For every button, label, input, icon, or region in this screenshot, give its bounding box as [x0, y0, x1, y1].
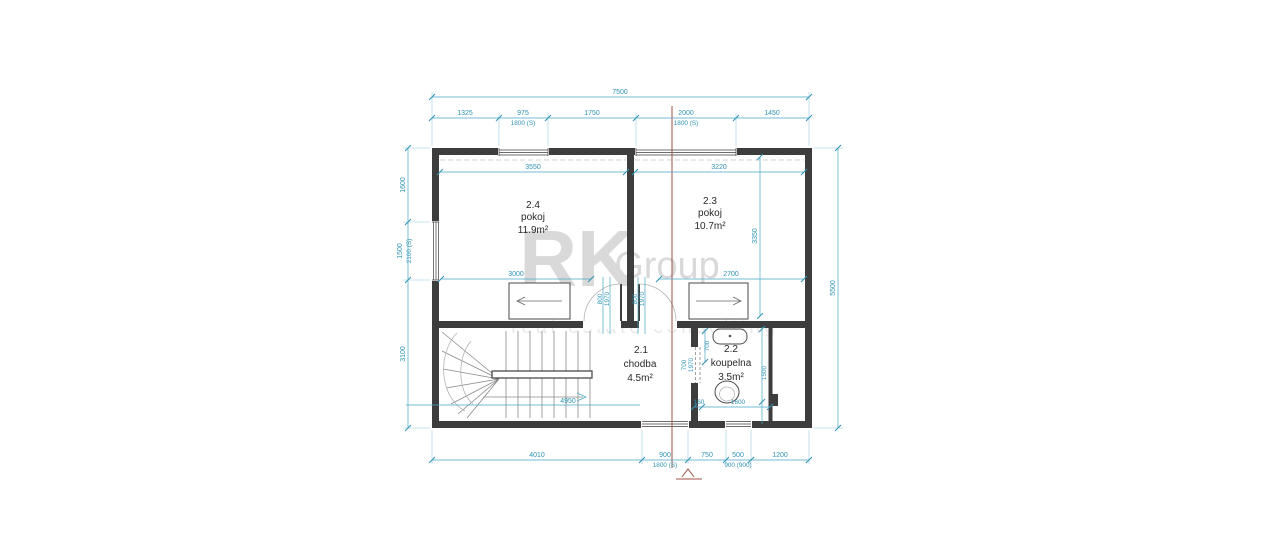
dim-room23-depth: 3350 [752, 228, 759, 244]
room23-name: pokoj [698, 208, 722, 219]
dim-bottom-window: 900 (900) [724, 462, 751, 469]
dim-top-window-2: 1800 (S) [674, 120, 699, 127]
dim-top-5: 1450 [764, 110, 780, 117]
room21-name: chodba [624, 359, 657, 370]
dim-top-3: 1750 [584, 110, 600, 117]
room24-name: pokoj [521, 212, 545, 223]
dim-bottom-5: 1200 [772, 452, 788, 459]
dim-top-4: 2000 [678, 110, 694, 117]
dim-left-window: 2100 (S) [406, 239, 413, 264]
room22-number: 2.2 [724, 344, 738, 355]
dim-top-window-1: 1800 (S) [511, 120, 536, 127]
dim-stair-walkline: 4950 [560, 398, 576, 405]
floor-plan-canvas: RK Group real estate consulting [0, 0, 1280, 551]
dim-left-1: 1600 [400, 177, 407, 193]
column [770, 394, 778, 406]
dim-right-overall: 5500 [830, 280, 837, 296]
dim-room23-bed: 2700 [723, 271, 739, 278]
section-marker-triangle [682, 469, 694, 477]
washbasin-tap [729, 335, 732, 338]
dim-door24-height: 1970 [604, 291, 611, 306]
dim-bath-bottom-1: 160 [694, 399, 705, 406]
room24-number: 2.4 [526, 200, 540, 211]
room21-number: 2.1 [634, 345, 648, 356]
dim-room23-width: 3220 [711, 164, 727, 171]
dim-bath-height: 1500 [761, 365, 768, 380]
dim-door24-width: 800 [597, 293, 604, 304]
dim-left-3: 3100 [400, 346, 407, 362]
door-opening-room24 [583, 320, 621, 329]
room22-area: 3.5m² [718, 372, 744, 383]
dim-top-2: 975 [517, 110, 529, 117]
dim-bottom-2: 900 [659, 452, 671, 459]
dim-left-2: 1500 [397, 243, 404, 259]
window-opening-2 [635, 144, 737, 155]
dim-door23-width: 800 [632, 293, 639, 304]
dim-bathdoor-height: 1970 [688, 357, 695, 372]
dim-top-1: 1325 [457, 110, 473, 117]
dim-top-overall: 7500 [612, 89, 628, 96]
room21-area: 4.5m² [627, 373, 653, 384]
window-opening-1 [498, 144, 549, 155]
dim-bathdoor-width: 700 [681, 359, 688, 370]
dim-bottom-4: 500 [732, 452, 744, 459]
room23-area: 10.7m² [694, 221, 726, 232]
dim-door23-height: 1970 [639, 291, 646, 306]
dim-bottom-3: 750 [701, 452, 713, 459]
stair-handrail [492, 371, 592, 378]
dim-bottom-1: 4010 [529, 452, 545, 459]
dim-bath-fixture: 700 [704, 340, 711, 351]
room24-area: 11.9m² [518, 225, 549, 236]
room23-number: 2.3 [703, 196, 717, 207]
dim-bath-bottom-2: 1600 [731, 399, 746, 406]
dim-room24-bed: 3000 [508, 271, 524, 278]
dim-room24-width: 3550 [525, 164, 541, 171]
room22-name: koupelna [711, 358, 752, 369]
dim-bottom-door: 1800 (S) [653, 462, 678, 469]
